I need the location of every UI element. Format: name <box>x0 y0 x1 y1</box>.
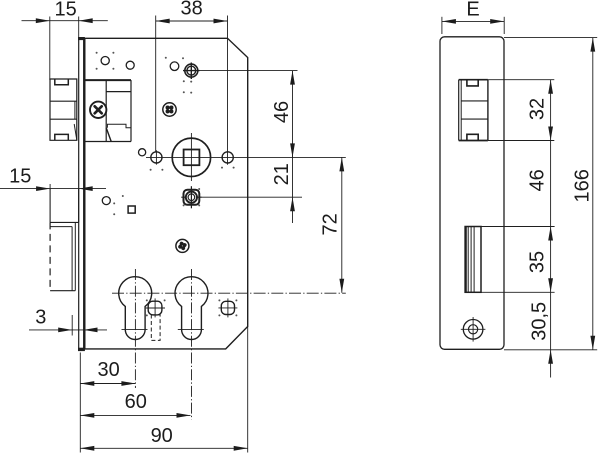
svg-text:21: 21 <box>271 163 293 185</box>
svg-text:15: 15 <box>54 0 76 20</box>
svg-text:72: 72 <box>320 213 342 235</box>
svg-text:35: 35 <box>527 251 549 273</box>
svg-text:3: 3 <box>35 306 46 328</box>
svg-text:38: 38 <box>180 0 202 19</box>
svg-text:32: 32 <box>527 98 549 120</box>
svg-text:46: 46 <box>271 101 293 123</box>
svg-text:15: 15 <box>9 166 31 188</box>
svg-text:90: 90 <box>151 425 173 447</box>
svg-text:E: E <box>466 0 479 21</box>
svg-text:30: 30 <box>97 359 119 381</box>
svg-text:30,5: 30,5 <box>529 302 551 341</box>
svg-text:46: 46 <box>527 169 549 191</box>
svg-text:166: 166 <box>572 169 594 202</box>
svg-text:60: 60 <box>125 391 147 413</box>
